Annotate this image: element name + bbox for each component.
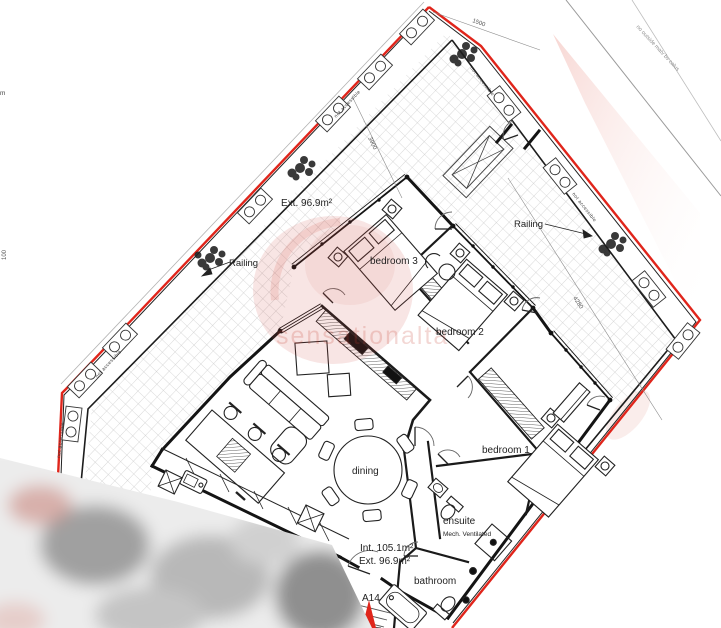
watermark-text: sensationalta [276,322,449,350]
railing-label-left: Railing [229,258,258,269]
edge-label-left: 100 [2,249,8,260]
bed-bedroom1 [508,424,599,517]
dining-chair [363,509,382,522]
ensuite-vent-note: Mech. Ventilated [443,531,491,538]
external-area-label: Ext. 96.9m² [359,556,411,567]
planter [357,54,392,90]
unit-ref-label: A14 [362,593,380,604]
dining-chair [401,479,419,500]
floor-plan-canvas: sensationalta Ext. 96.9m² bedroom 3 bedr… [0,0,721,628]
bathroom-label: bathroom [414,576,456,587]
adjacent-annotation: no outside matv bv calus [635,24,681,73]
dining-chair [355,418,374,431]
extract-point [470,568,477,575]
appliance [297,505,324,532]
dining-chair [396,433,415,454]
bathtub [378,584,427,628]
edge-label-top: m [0,90,5,97]
railing-label-right: Railing [514,219,543,230]
extract-point [463,597,469,603]
dining-chair [321,486,340,507]
bedroom2-label: bedroom 2 [436,327,484,338]
bedroom1-label: bedroom 1 [482,445,530,456]
side-table [439,264,455,280]
ensuite-label: ensuite [443,516,476,527]
dim-1500: 1500 [471,18,486,28]
planter [399,9,434,45]
dining-chair [318,440,336,461]
dining-label: dining [352,466,379,477]
bench-seat [553,383,590,422]
utensil-mark [236,492,245,500]
appliance [158,470,182,494]
bedroom3-label: bedroom 3 [370,256,418,267]
planter [315,96,350,132]
coffee-table [327,373,350,396]
terrace-area-label: Ext. 96.9m² [281,198,333,209]
wardrobe [478,368,544,439]
internal-area-label: Int. 105.1m² [360,543,414,554]
ensuite-basin [428,478,448,498]
kitchen-sink [179,470,207,494]
